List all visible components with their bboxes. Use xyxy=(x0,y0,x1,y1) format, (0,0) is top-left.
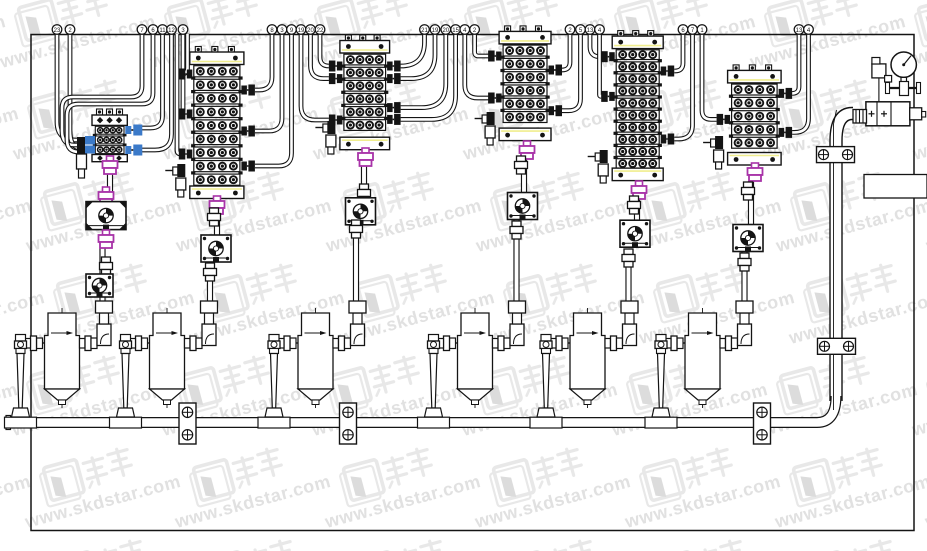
svg-text:11: 11 xyxy=(159,28,166,34)
svg-text:19: 19 xyxy=(432,28,439,34)
svg-text:21: 21 xyxy=(421,28,428,34)
svg-text:12: 12 xyxy=(168,28,175,34)
svg-text:20: 20 xyxy=(307,28,314,34)
svg-text:13: 13 xyxy=(587,28,594,34)
svg-text:15: 15 xyxy=(452,28,459,34)
svg-text:22: 22 xyxy=(317,28,324,34)
svg-text:23: 23 xyxy=(54,28,61,34)
svg-text:19: 19 xyxy=(298,28,305,34)
svg-text:20: 20 xyxy=(442,28,449,34)
svg-text:13: 13 xyxy=(796,28,803,34)
